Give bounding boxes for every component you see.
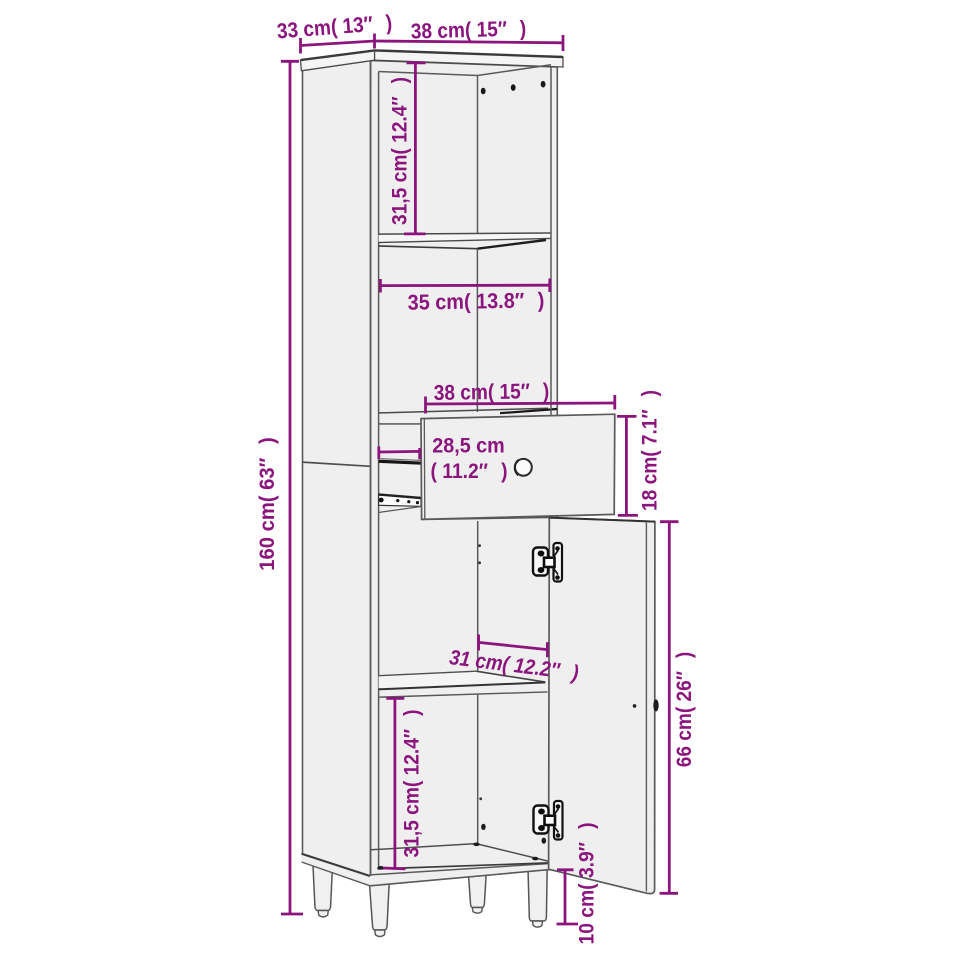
- svg-text:35 cm( 13.8″ ): 35 cm( 13.8″ ): [407, 288, 544, 314]
- svg-text:38 cm( 15″ ): 38 cm( 15″ ): [434, 379, 550, 405]
- svg-text:( 11.2″ ): ( 11.2″ ): [431, 459, 508, 483]
- svg-text:31,5 cm( 12.4″ ): 31,5 cm( 12.4″ ): [388, 77, 412, 225]
- svg-text:31,5 cm( 12.4″ ): 31,5 cm( 12.4″ ): [400, 710, 424, 858]
- svg-text:18 cm( 7.1″ ): 18 cm( 7.1″ ): [638, 390, 662, 511]
- svg-text:28,5 cm: 28,5 cm: [432, 434, 505, 458]
- svg-text:66 cm( 26″ ): 66 cm( 26″ ): [672, 652, 696, 768]
- svg-text:38 cm( 15″ ): 38 cm( 15″ ): [410, 16, 526, 43]
- svg-text:160 cm( 63″ ): 160 cm( 63″ ): [255, 437, 279, 570]
- svg-text:10 cm( 3.9″ ): 10 cm( 3.9″ ): [575, 823, 599, 945]
